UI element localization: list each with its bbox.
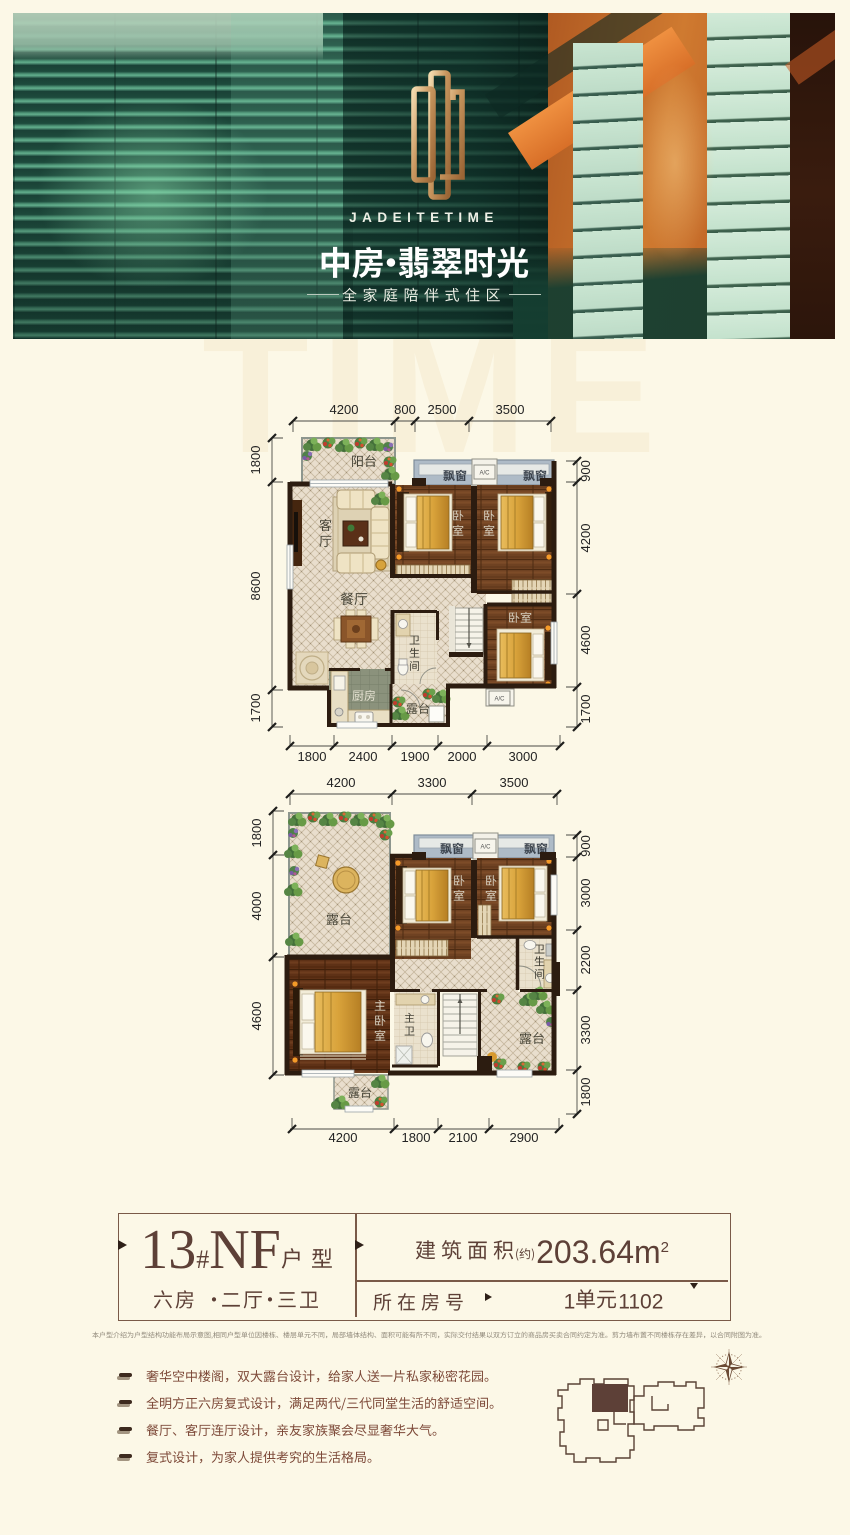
svg-text:3000: 3000 <box>578 879 593 908</box>
svg-text:8600: 8600 <box>248 572 263 601</box>
svg-text:2400: 2400 <box>349 749 378 764</box>
svg-text:2000: 2000 <box>448 749 477 764</box>
svg-text:1800: 1800 <box>578 1078 593 1107</box>
svg-text:2100: 2100 <box>449 1130 478 1145</box>
svg-text:2900: 2900 <box>510 1130 539 1145</box>
svg-text:4200: 4200 <box>327 775 356 790</box>
svg-text:1700: 1700 <box>578 695 593 724</box>
svg-text:1900: 1900 <box>401 749 430 764</box>
svg-text:1800: 1800 <box>249 819 264 848</box>
svg-text:900: 900 <box>578 835 593 857</box>
svg-text:4600: 4600 <box>578 626 593 655</box>
svg-text:4000: 4000 <box>249 892 264 921</box>
svg-text:3000: 3000 <box>509 749 538 764</box>
svg-text:900: 900 <box>578 460 593 482</box>
svg-text:1700: 1700 <box>248 694 263 723</box>
svg-text:3300: 3300 <box>418 775 447 790</box>
svg-text:800: 800 <box>394 402 416 417</box>
svg-text:2200: 2200 <box>578 946 593 975</box>
svg-text:3300: 3300 <box>578 1016 593 1045</box>
svg-text:4200: 4200 <box>329 1130 358 1145</box>
svg-text:3500: 3500 <box>496 402 525 417</box>
svg-text:4600: 4600 <box>249 1002 264 1031</box>
svg-text:3500: 3500 <box>500 775 529 790</box>
svg-text:1800: 1800 <box>248 446 263 475</box>
svg-text:4200: 4200 <box>578 524 593 553</box>
svg-text:1800: 1800 <box>402 1130 431 1145</box>
svg-text:4200: 4200 <box>330 402 359 417</box>
svg-text:1800: 1800 <box>298 749 327 764</box>
svg-text:2500: 2500 <box>428 402 457 417</box>
